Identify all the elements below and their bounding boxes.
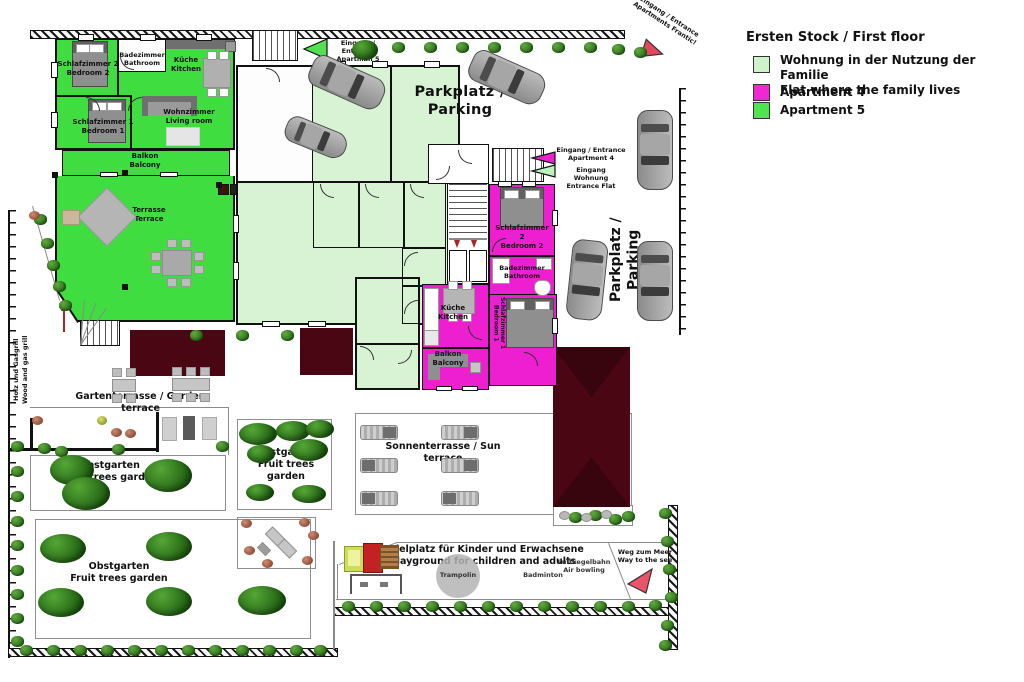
bush [520, 42, 533, 53]
bed [506, 298, 554, 348]
bush [11, 491, 24, 502]
stone [581, 513, 592, 522]
bed [500, 187, 544, 227]
car-windshield [572, 285, 600, 296]
window [233, 262, 239, 280]
bush [281, 330, 294, 341]
room-label: Wohnzimmer Living room [156, 108, 222, 126]
stairs-down-arrow-icon [471, 240, 477, 251]
flower-bush [241, 519, 252, 528]
bush [426, 601, 439, 612]
bush [342, 601, 355, 612]
east-parking-fence [679, 88, 686, 335]
parked-car [565, 238, 609, 321]
car-windshield [641, 156, 668, 165]
parked-car [637, 110, 673, 190]
legend-swatch-apartment4 [753, 84, 770, 101]
car-rear-window [641, 124, 668, 132]
tree [306, 420, 334, 438]
car-roof [640, 265, 670, 286]
window [522, 181, 536, 187]
flower-bush [29, 211, 40, 220]
swing-leg [350, 574, 352, 594]
stone [601, 510, 612, 519]
bush [622, 511, 635, 522]
lounger-cushion [464, 460, 477, 471]
window [233, 215, 239, 233]
yard-bench [162, 417, 177, 441]
tree [292, 485, 326, 503]
interior-wall [55, 95, 130, 97]
window [436, 386, 452, 391]
toilet [534, 280, 551, 296]
flat-room [313, 182, 359, 248]
tree [146, 587, 192, 616]
legend-label: Apartment 4 [780, 85, 1020, 100]
sun-lounger [441, 425, 479, 440]
flower-bush [244, 546, 255, 555]
bush [456, 42, 469, 53]
tree [247, 445, 275, 463]
room-label: Küche Kitchen [168, 56, 204, 74]
bush [236, 645, 249, 656]
tree [276, 421, 310, 441]
tree [290, 439, 328, 461]
bush [659, 508, 672, 519]
way-to-sea-arrow-icon [625, 566, 655, 596]
flower-bush [32, 416, 43, 425]
car-windshield [641, 287, 668, 296]
way-to-sea-label: Weg zum Meer Way to the see [614, 548, 676, 564]
roof-shade [553, 457, 630, 507]
playground-fence [337, 564, 338, 600]
bush [594, 601, 607, 612]
bush [101, 645, 114, 656]
bush [11, 441, 24, 452]
bush [314, 645, 327, 656]
balcony-post [122, 170, 128, 176]
bush [11, 466, 24, 477]
tree [238, 586, 286, 615]
floor-plan: Schlafzimmer 2 Bedroom 2 Badezimmer Bath… [0, 0, 1024, 682]
entrance-apartment4-label: Eingang / Entrance Apartment 4 [556, 146, 626, 162]
bush [216, 441, 229, 452]
bush [290, 645, 303, 656]
lounger-cushion [464, 427, 477, 438]
stair-closet [469, 250, 487, 282]
flat-room [359, 182, 404, 248]
flower-bush [262, 559, 273, 568]
legend-swatch-apartment5 [753, 102, 770, 119]
room-label: Balkon Balcony [110, 152, 180, 170]
bush [659, 640, 672, 651]
bush [584, 42, 597, 53]
bush [47, 645, 60, 656]
flat-room [402, 248, 446, 286]
window [552, 210, 558, 226]
bush [53, 281, 66, 292]
playground-fence [396, 542, 668, 543]
room-label: Badezimmer Bathroom [494, 264, 550, 280]
sofa-arm [142, 96, 148, 116]
stove [424, 330, 439, 346]
air-bowling-label: Luftkegelbahn Air bowling [556, 558, 612, 574]
bush [622, 601, 635, 612]
bush [155, 645, 168, 656]
bush [128, 645, 141, 656]
flower-bush [308, 531, 319, 540]
bush [11, 540, 24, 551]
lounger-cushion [362, 493, 375, 504]
tree [246, 484, 274, 501]
entrance-apartment4-arrow-icon [530, 151, 556, 165]
bush [59, 300, 72, 311]
bush [424, 42, 437, 53]
flower-bush [302, 556, 313, 565]
garden-table [172, 378, 210, 391]
window [262, 321, 280, 327]
trampoline-label: Trampolin [436, 571, 480, 579]
bush [74, 645, 87, 656]
bush [38, 443, 51, 454]
terrace [55, 176, 235, 322]
window [424, 61, 440, 68]
stairs [449, 184, 487, 236]
window [196, 34, 212, 41]
window [140, 34, 156, 41]
bush [11, 589, 24, 600]
tree [146, 532, 192, 561]
flower-bush [299, 518, 310, 527]
bush [263, 645, 276, 656]
bush [112, 444, 125, 455]
entrance-flat-label: Eingang Wohnung Entrance Flat [558, 166, 624, 190]
legend: Ersten Stock / First floor Wohnung in de… [744, 28, 1014, 128]
window [78, 34, 94, 41]
bush [634, 47, 647, 58]
yard-bench [202, 417, 217, 440]
bush [11, 565, 24, 576]
sun-lounger [360, 425, 398, 440]
bush [236, 330, 249, 341]
playground-fence [336, 599, 670, 600]
legend-title: Ersten Stock / First floor [746, 30, 1006, 46]
window [372, 61, 388, 68]
bush [20, 645, 33, 656]
bush [661, 620, 674, 631]
bush [209, 645, 222, 656]
entrance-flat-arrow-icon [530, 164, 556, 178]
legend-label: Apartment 5 [780, 103, 1020, 118]
yard-fence [156, 412, 159, 452]
bush [392, 42, 405, 53]
room-label: Schlafzimmer 1 Bedroom 1 [70, 118, 136, 136]
sun-lounger [360, 491, 398, 506]
window [308, 321, 326, 327]
room-label: Schlafzimmer 2 Bedroom 2 [56, 60, 120, 78]
stair-closet [449, 250, 467, 282]
parked-car [637, 241, 673, 321]
bush [370, 601, 383, 612]
wood-gas-grill-label: Holz und Gasgrill Wood and gas grill [12, 328, 38, 412]
terrace-mat [62, 210, 80, 225]
rug [166, 127, 200, 146]
swing-leg [400, 574, 402, 594]
bush [41, 238, 54, 249]
balcony-post [216, 182, 222, 188]
entrance-frantic-label: Eingang / Entrance Apartments Frantic! [621, 0, 714, 54]
parking-right-label: Parkplatz / Parking [608, 190, 632, 330]
legend-swatch-family-flat [753, 56, 770, 73]
swing-beam [350, 574, 402, 576]
outside-stairs [252, 30, 298, 61]
car-roof [572, 262, 604, 286]
window [498, 181, 512, 187]
balcony-post [122, 284, 128, 290]
bush [190, 330, 203, 341]
room-label: Schlafzimmer 1 Bedroom 1 [490, 296, 505, 350]
bush [182, 645, 195, 656]
window [100, 172, 118, 177]
roof-shade [553, 347, 630, 397]
bush [482, 601, 495, 612]
kitchen-counter [166, 40, 234, 49]
flower-bush [125, 429, 136, 438]
lounger-cushion [383, 427, 396, 438]
window [51, 112, 58, 128]
garden-table [112, 379, 136, 392]
kitchen-table [203, 58, 231, 88]
bush [11, 613, 24, 624]
lounger-cushion [362, 460, 375, 471]
flower-bush [97, 416, 107, 425]
yard-bench [183, 416, 195, 440]
sun-lounger [441, 458, 479, 473]
terrace-table [162, 250, 192, 276]
bush [663, 564, 676, 575]
bush [661, 536, 674, 547]
bush [454, 601, 467, 612]
tree [40, 534, 86, 563]
room-label: Balkon Balcony [424, 350, 472, 368]
hip-roof [553, 347, 630, 507]
climbing-ladder [380, 545, 399, 569]
stone [559, 511, 570, 520]
slide-chute [348, 550, 360, 566]
car-rear-window [575, 253, 603, 264]
tree [62, 477, 110, 510]
bush [538, 601, 551, 612]
tree [239, 423, 277, 445]
flat-room [404, 182, 446, 248]
bush [47, 260, 60, 271]
stairs-down-arrow-icon [454, 240, 460, 251]
lounger-cushion [443, 493, 456, 504]
garden-stairs [80, 320, 120, 346]
car-roof [640, 134, 670, 155]
bush [11, 516, 24, 527]
sun-lounger [441, 491, 479, 506]
bush [612, 44, 625, 55]
bush [649, 600, 662, 611]
window [552, 318, 558, 334]
balcony-post [52, 172, 58, 178]
tree [144, 459, 192, 492]
swing-seat [360, 582, 368, 587]
window [462, 386, 478, 391]
roof-block [300, 328, 353, 375]
car-rear-window [641, 255, 668, 263]
window [51, 62, 58, 78]
tree [38, 588, 84, 617]
window [160, 172, 178, 177]
bush [566, 601, 579, 612]
sun-lounger [360, 458, 398, 473]
room-label: Küche Kitchen [430, 304, 476, 322]
bush [510, 601, 523, 612]
plot-divider [333, 541, 335, 649]
floor-plan-canvas: Schlafzimmer 2 Bedroom 2 Badezimmer Bath… [0, 0, 1024, 682]
fruit-garden-label: Obstgarten Fruit trees garden [60, 561, 178, 585]
flower-bush [111, 428, 122, 437]
swing-seat [380, 582, 388, 587]
bush [398, 601, 411, 612]
bush [552, 42, 565, 53]
tree [352, 40, 378, 60]
bush [665, 592, 678, 603]
